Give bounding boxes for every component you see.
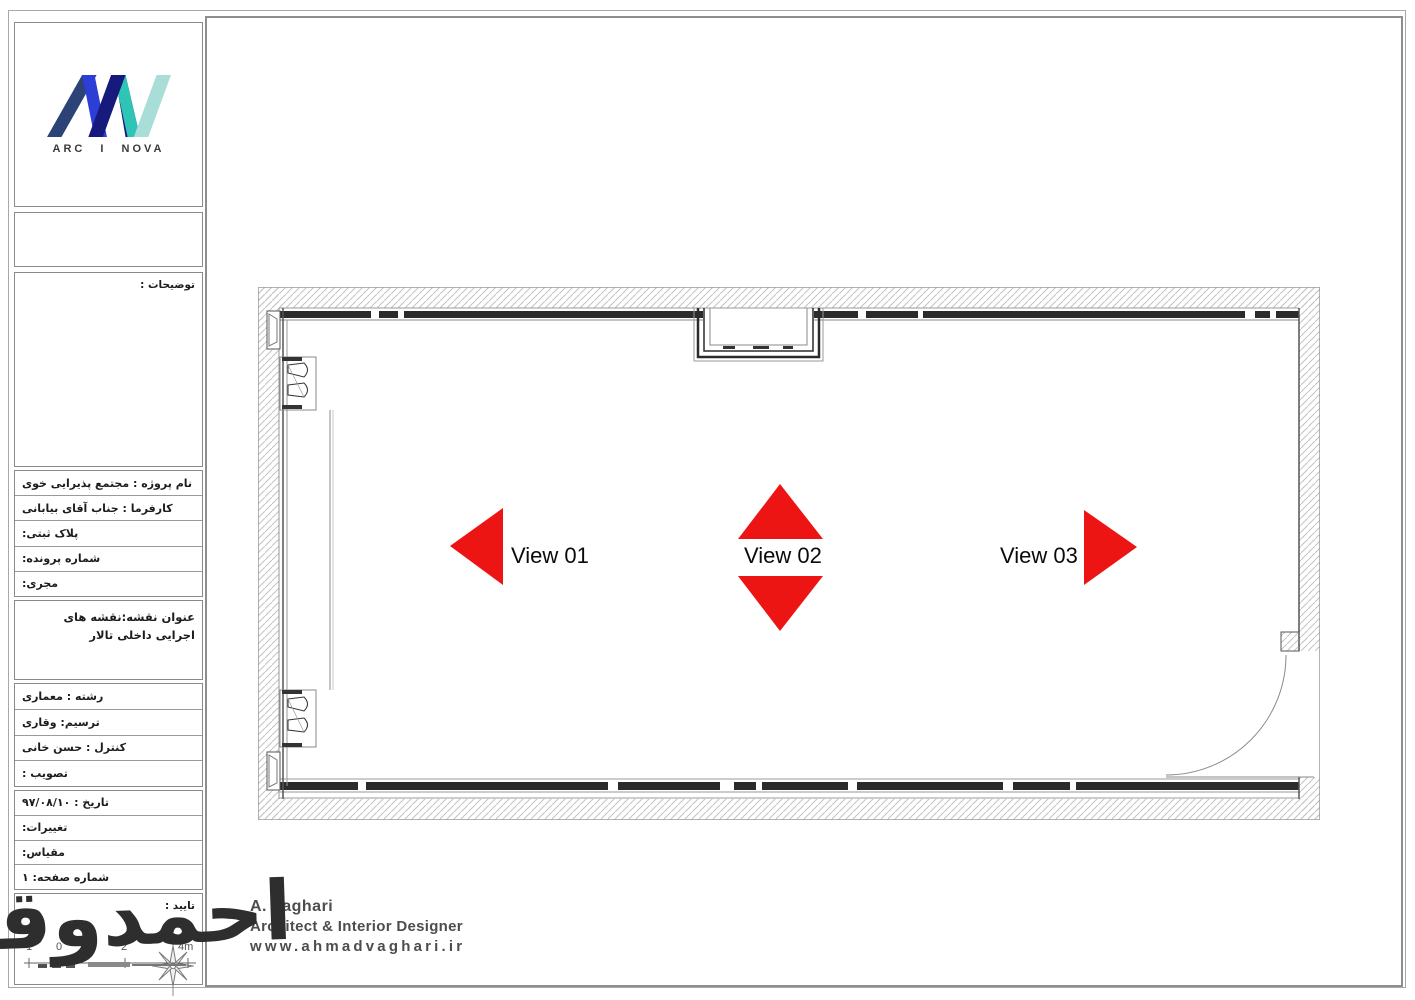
view-03-arrow-right-icon: [1084, 510, 1137, 585]
controller-row: کنترل : حسن خانی: [15, 736, 202, 762]
drawing-title-box: عنوان نقشه:نقشه های اجرایی داخلی تالار: [14, 600, 203, 680]
drawing-title: عنوان نقشه:نقشه های اجرایی داخلی تالار: [15, 601, 202, 652]
discipline-row: رشته : معماری: [15, 684, 202, 710]
changes-row: تغییرات:: [15, 816, 202, 841]
date-row: تاریخ : ۹۷/۰۸/۱۰: [15, 791, 202, 816]
project-info-box: نام پروژه : مجتمع پذیرایی خوی کارفرما : …: [14, 470, 203, 597]
logo-box: ARC I NOVA: [14, 22, 203, 207]
executor-row: مجری:: [15, 572, 202, 596]
project-name-row: نام پروژه : مجتمع پذیرایی خوی: [15, 471, 202, 496]
drafter-row: ترسیم: وقاری: [15, 710, 202, 736]
right-wall: [1166, 308, 1314, 799]
view-02-arrow-down-icon: [738, 576, 823, 631]
personnel-box: رشته : معماری ترسیم: وقاری کنترل : حسن خ…: [14, 683, 203, 787]
view-01-label: View 01: [511, 543, 589, 569]
logo-text: ARC I NOVA: [15, 143, 202, 155]
top-niche: [694, 308, 823, 361]
file-number-row: شماره پرونده:: [15, 547, 202, 572]
plate-number-row: پلاک ثبتی:: [15, 521, 202, 546]
scale-row: مقیاس:: [15, 841, 202, 866]
approval-row: تصویب :: [15, 761, 202, 786]
view-01-arrow-left-icon: [450, 508, 503, 585]
view-02-label: View 02: [744, 543, 822, 569]
bottom-wall: [279, 779, 1299, 798]
top-wall: [279, 308, 1299, 320]
client-row: کارفرما : جناب آقای بیابانی: [15, 496, 202, 521]
notes-label: توضیحات :: [15, 273, 202, 297]
arcnova-logo-icon: [39, 75, 179, 137]
notes-box: توضیحات :: [14, 272, 203, 467]
view-02-arrow-up-icon: [738, 484, 823, 539]
view-03-label: View 03: [1000, 543, 1078, 569]
revision-box: [14, 212, 203, 267]
signature-watermark: احمدوقاری: [0, 867, 293, 968]
